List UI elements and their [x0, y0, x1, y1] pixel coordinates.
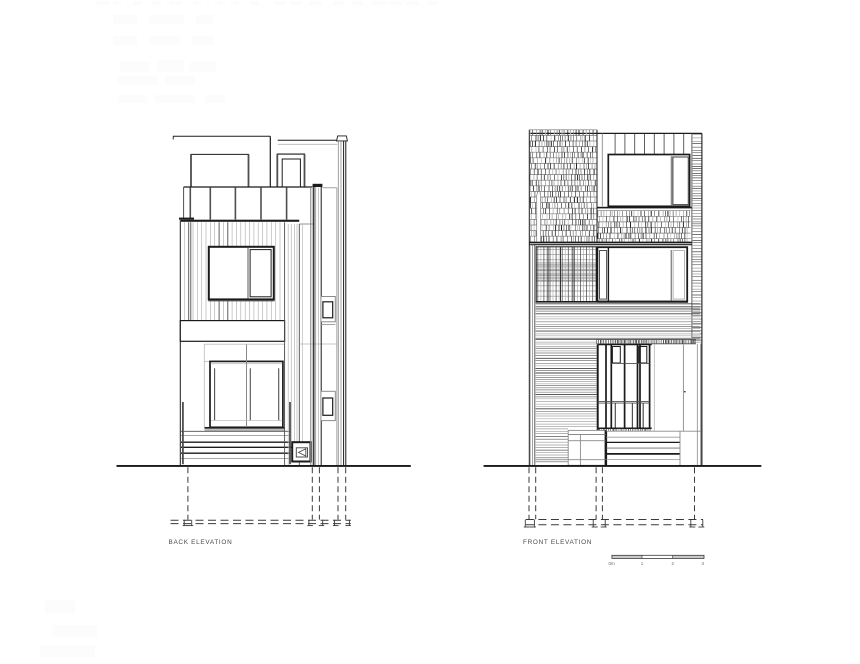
svg-text:1: 1	[641, 561, 644, 566]
svg-text:0m: 0m	[609, 561, 615, 566]
svg-text:2: 2	[672, 561, 675, 566]
svg-text:FRONT ELEVATION: FRONT ELEVATION	[523, 539, 592, 546]
svg-text:3: 3	[702, 561, 705, 566]
svg-text:BACK ELEVATION: BACK ELEVATION	[169, 539, 233, 546]
